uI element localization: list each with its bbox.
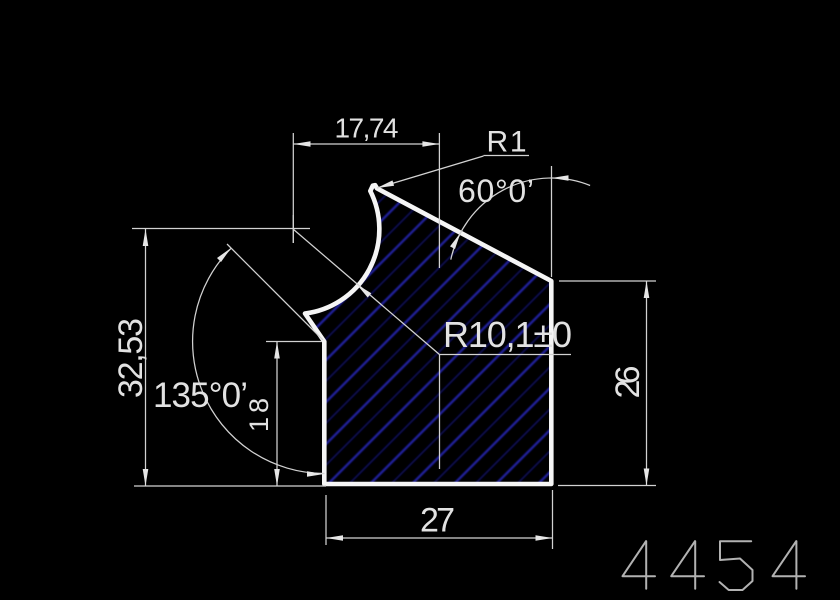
svg-text:R10,1±0: R10,1±0 (443, 314, 572, 355)
svg-text:60°0’: 60°0’ (458, 173, 534, 209)
svg-text:27: 27 (420, 502, 455, 540)
svg-text:17,74: 17,74 (335, 113, 399, 144)
svg-text:26: 26 (609, 366, 647, 399)
svg-text:32,53: 32,53 (112, 318, 150, 398)
svg-text:135°0’: 135°0’ (153, 376, 248, 415)
svg-text:R1: R1 (487, 126, 527, 159)
